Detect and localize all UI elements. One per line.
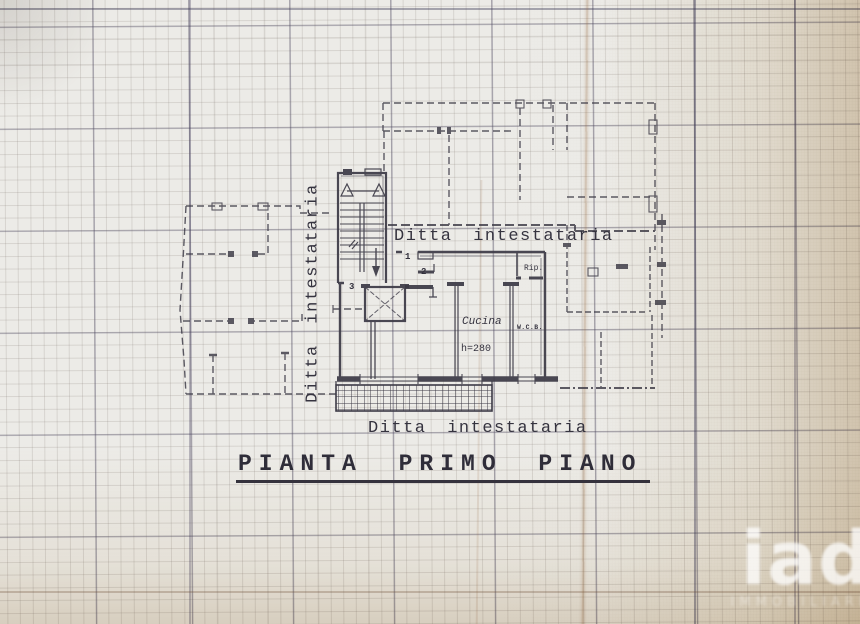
owner-label-bottom: Ditta intestataria bbox=[368, 419, 588, 438]
owner-label-top: Ditta intestataria bbox=[394, 227, 614, 246]
adjacent-apartment-top bbox=[383, 100, 666, 338]
label-storage: Rip. bbox=[524, 264, 543, 273]
label-door-1: 1 bbox=[405, 252, 411, 262]
adjacent-apartment-left bbox=[180, 203, 364, 394]
label-door-3: 3 bbox=[349, 282, 354, 292]
balcony-hatch bbox=[336, 381, 492, 411]
label-kitchen-height: h=280 bbox=[461, 343, 491, 355]
label-door-2: 2 bbox=[421, 267, 426, 277]
elevator bbox=[361, 284, 409, 379]
floor-plan-drawing: 1 2 3 Rip. Cucina h=280 W.C.B. bbox=[0, 0, 860, 624]
owner-label-left: Ditta intestataria bbox=[304, 183, 323, 403]
plan-title: PIANTA PRIMO PIANO bbox=[236, 451, 650, 483]
label-wc: W.C.B. bbox=[517, 324, 543, 331]
stairwell bbox=[338, 169, 386, 283]
label-kitchen: Cucina bbox=[462, 316, 502, 328]
scanned-floor-plan-page: 1 2 3 Rip. Cucina h=280 W.C.B. Ditta int… bbox=[0, 0, 860, 624]
adjacent-apartment-right bbox=[560, 225, 655, 388]
